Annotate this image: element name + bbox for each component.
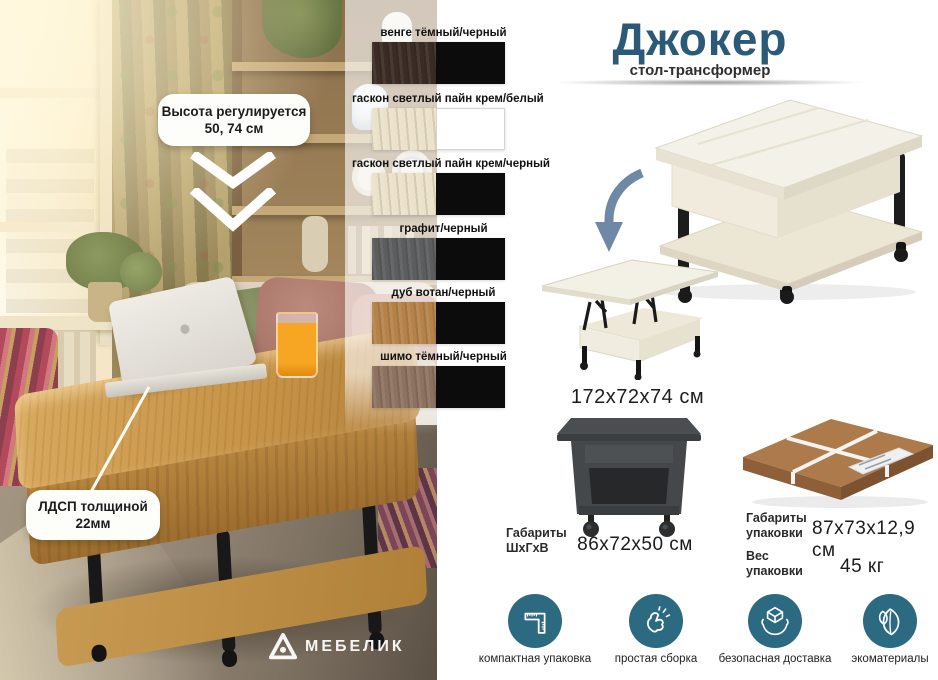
laptop-logo	[179, 323, 190, 334]
callout-ldsp-line1: ЛДСП толщиной	[26, 498, 160, 515]
swatch-texture	[372, 173, 436, 215]
swatch	[372, 173, 505, 215]
feature-label: безопасная доставка	[715, 653, 835, 665]
pack-dims-label-line1: Габариты	[746, 511, 807, 526]
swatch-solid	[436, 173, 505, 215]
dims-value: 86х72х50 см	[575, 534, 695, 556]
page-subtitle: стол-трансформер	[555, 62, 845, 79]
pack-weight-label-line1: Вес	[746, 549, 803, 564]
swatch-texture	[372, 42, 436, 84]
dims-label: Габариты ШхГхВ	[506, 526, 567, 556]
dims-label-line2: ШхГхВ	[506, 541, 567, 556]
leaf-icon	[863, 594, 917, 648]
package-image	[735, 405, 938, 510]
brand-mark-icon	[268, 632, 298, 662]
swatch	[372, 42, 505, 84]
swatch-solid	[436, 366, 505, 408]
swatch-row: венге тёмный/черный	[352, 27, 535, 84]
swatch-label: графит/черный	[352, 223, 535, 235]
dims-label-line1: Габариты	[506, 526, 567, 541]
swatch-label: дуб вотан/черный	[352, 287, 535, 299]
product-card: Высота регулируется 50, 74 см ЛДСП толщи…	[0, 0, 938, 680]
swatch-row: графит/черный	[352, 223, 535, 280]
callout-ldsp: ЛДСП толщиной 22мм	[26, 490, 160, 540]
swatch-row: шимо тёмный/черный	[352, 351, 535, 408]
swatch-texture	[372, 302, 436, 344]
pack-dims-label: Габариты упаковки	[746, 511, 807, 541]
brand-name: МЕБЕЛИК	[305, 638, 405, 656]
swatch	[372, 302, 505, 344]
swatch-label: гаскон светлый пайн крем/белый	[352, 93, 535, 105]
feature-label: экоматериалы	[830, 653, 938, 665]
swatch-label: венге тёмный/черный	[352, 27, 535, 39]
swatch-row: дуб вотан/черный	[352, 287, 535, 344]
pack-weight-label: Вес упаковки	[746, 549, 803, 579]
callout-line	[85, 382, 155, 496]
callout-height-line1: Высота регулируется	[158, 103, 310, 120]
caster	[222, 650, 238, 668]
callout-ldsp-line2: 22мм	[26, 515, 160, 532]
pack-weight-value: 45 кг	[840, 556, 884, 578]
swatch-label: шимо тёмный/черный	[352, 351, 535, 363]
opened-size-label: 172х72х74 см	[545, 386, 730, 409]
swatch-solid	[436, 108, 505, 150]
transform-arrow-icon	[592, 168, 648, 256]
chevron-down-icon	[190, 188, 276, 234]
title-shadow	[552, 79, 867, 86]
feature-label: простая сборка	[596, 653, 716, 665]
snap-fingers-icon	[629, 594, 683, 648]
brand-logo: МЕБЕЛИК	[268, 632, 405, 662]
swatch-row: гаскон светлый пайн крем/черный	[352, 158, 535, 215]
juice-glass	[276, 312, 318, 378]
feature-eco-materials: экоматериалы	[830, 594, 938, 665]
swatch-texture	[372, 238, 436, 280]
dark-table-image	[555, 410, 703, 540]
swatch-row: гаскон светлый пайн крем/белый	[352, 93, 535, 150]
hands-box-icon	[748, 594, 802, 648]
pack-dims-label-line2: упаковки	[746, 526, 807, 541]
callout-height-line2: 50, 74 см	[158, 120, 310, 137]
swatch-solid	[436, 238, 505, 280]
page-title: Джокер	[555, 12, 845, 66]
swatch-solid	[436, 42, 505, 84]
callout-height: Высота регулируется 50, 74 см	[158, 94, 310, 146]
feature-compact-packaging: компактная упаковка	[475, 594, 595, 665]
swatch	[372, 366, 505, 408]
swatch-texture	[372, 108, 436, 150]
swatch	[372, 238, 505, 280]
chevron-down-icon	[190, 152, 276, 192]
feature-safe-delivery: безопасная доставка	[715, 594, 835, 665]
swatch-solid	[436, 302, 505, 344]
ruler-icon	[508, 594, 562, 648]
opened-table-image	[540, 252, 720, 380]
feature-easy-assembly: простая сборка	[596, 594, 716, 665]
feature-label: компактная упаковка	[475, 653, 595, 665]
pack-weight-label-line2: упаковки	[746, 564, 803, 579]
swatch-texture	[372, 366, 436, 408]
swatch-label: гаскон светлый пайн крем/черный	[352, 158, 535, 170]
swatch	[372, 108, 505, 150]
caster	[91, 644, 107, 662]
color-swatches: венге тёмный/черный гаскон светлый пайн …	[352, 0, 535, 430]
